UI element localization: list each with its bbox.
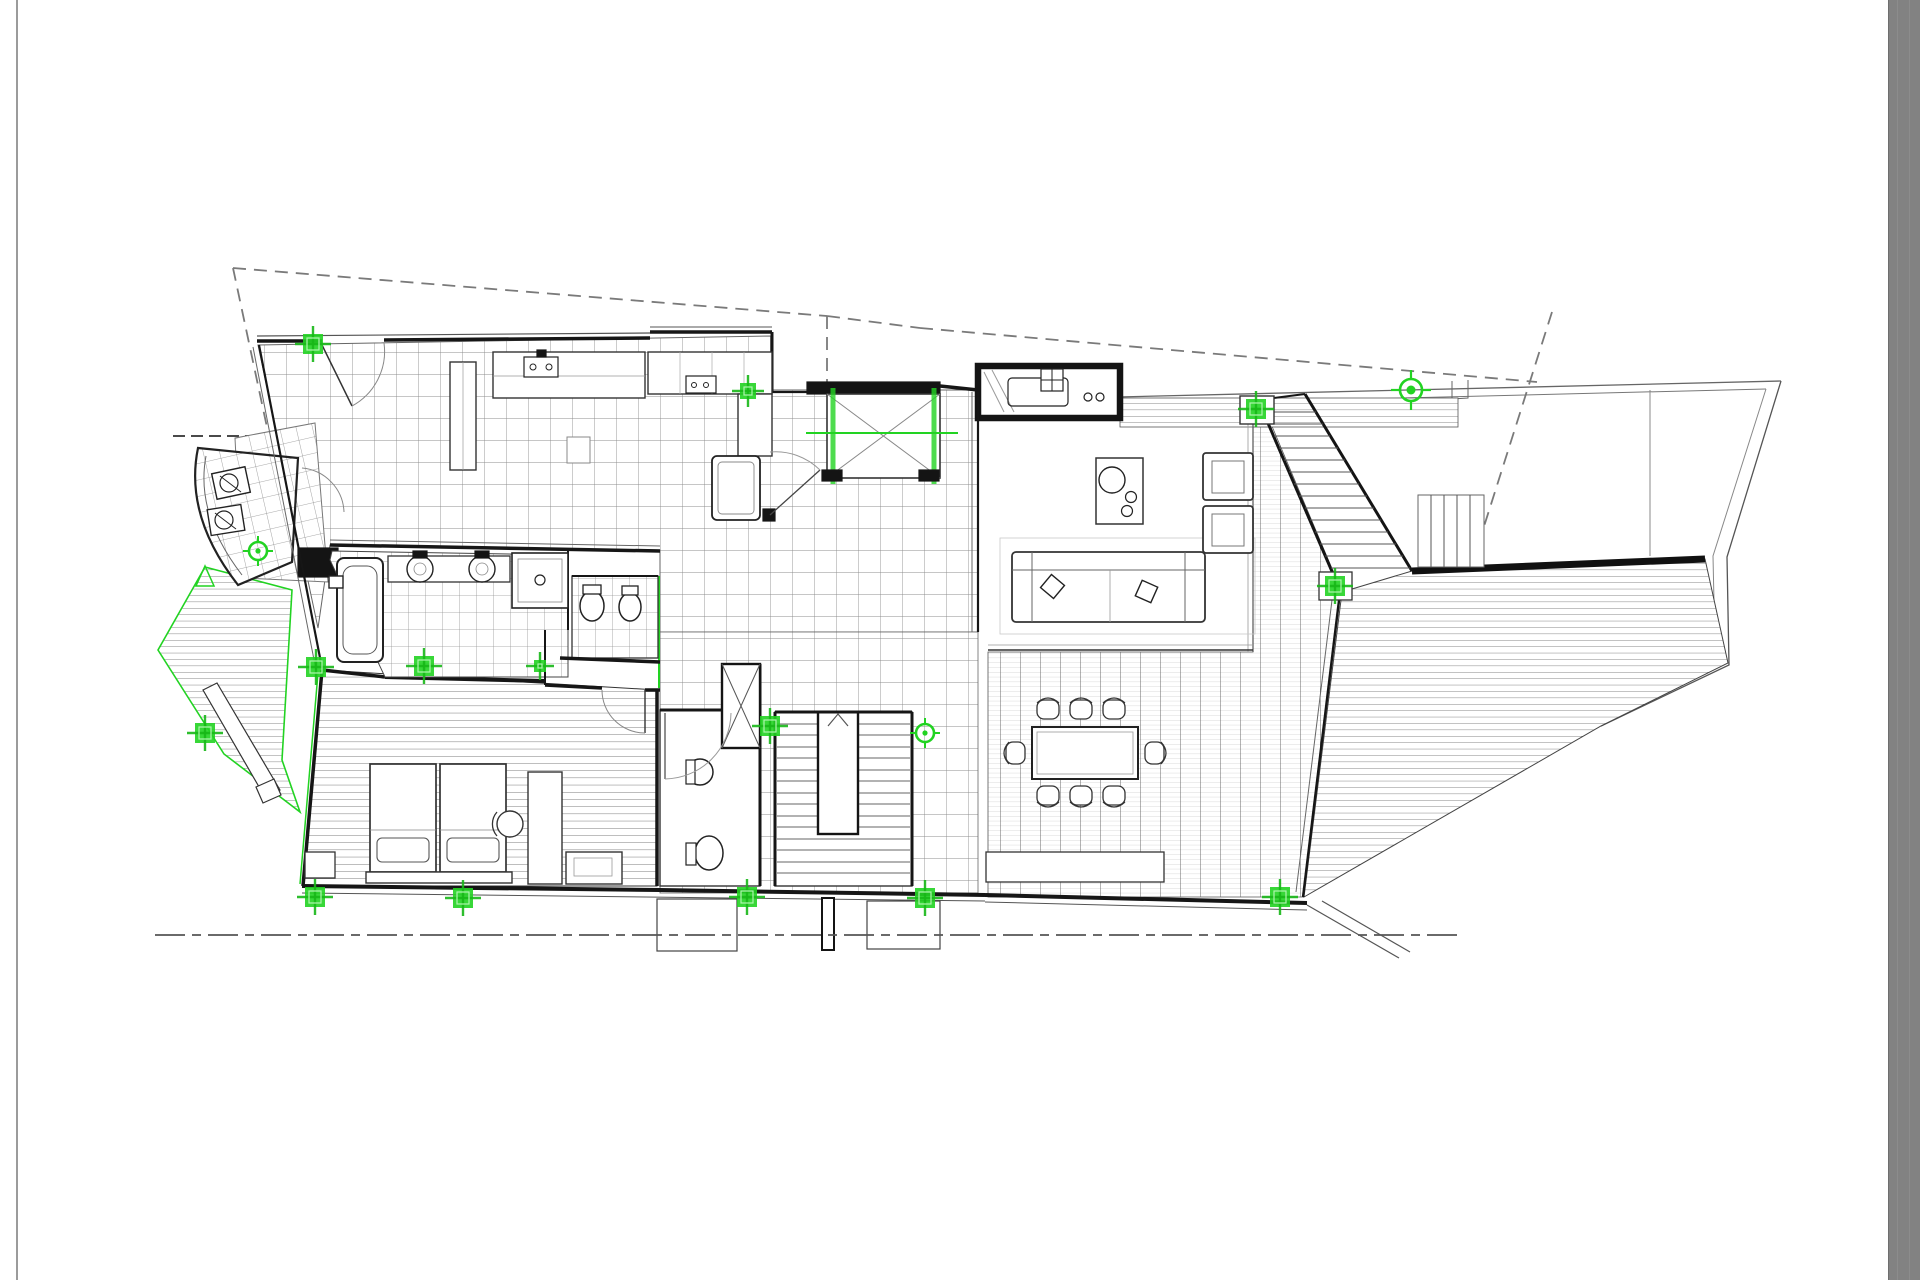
prep-sink [686, 376, 716, 393]
dresser [566, 852, 622, 884]
plan-shape [919, 470, 939, 481]
toilet [580, 591, 604, 621]
exterior-step [867, 901, 940, 949]
floor-plan-canvas [0, 0, 1920, 1280]
garden-steps [1418, 495, 1484, 567]
headboard [366, 872, 512, 883]
page-edge [16, 0, 18, 1280]
toilet [695, 836, 723, 870]
bidet [619, 593, 641, 621]
stair-core [818, 712, 858, 834]
plan-shape [413, 551, 427, 558]
nightstand [305, 852, 335, 878]
path-edge [1322, 901, 1410, 952]
desk [528, 772, 562, 884]
bench [986, 852, 1164, 882]
dining-chair [1070, 786, 1092, 805]
plan-shape [822, 470, 842, 481]
lot-boundary-dashed [233, 268, 827, 316]
dining-chair [1006, 742, 1025, 764]
dining-chair [1037, 786, 1059, 805]
scrollbar[interactable] [1888, 0, 1920, 1280]
dining-chair [1145, 742, 1164, 764]
scrollbar-streak [1909, 0, 1910, 1280]
sink [469, 556, 495, 582]
path-edge [1307, 905, 1399, 958]
exterior-step [657, 899, 737, 951]
drain-post [822, 898, 834, 950]
wall-north [384, 338, 650, 340]
wall [940, 386, 978, 390]
bathtub [337, 558, 383, 662]
desk-chair [497, 811, 523, 837]
door-jamb [763, 509, 775, 521]
deck-west [158, 567, 300, 812]
site-outline [1117, 381, 1781, 397]
plan-shape [583, 585, 601, 594]
skylight-head-wall [807, 382, 940, 394]
plan-shape [537, 350, 546, 357]
dining-chair [1037, 700, 1059, 719]
bed [370, 764, 436, 872]
kitchen-sink [524, 357, 558, 377]
lot-boundary-dashed [827, 316, 920, 328]
bed [440, 764, 506, 872]
tub-tap [329, 576, 343, 588]
tall-cabinet [738, 394, 772, 456]
shower [512, 553, 568, 608]
wall-south [302, 886, 660, 890]
dining-chair [1070, 700, 1092, 719]
deck-east-lower [1304, 559, 1728, 897]
plan-shape [475, 551, 489, 558]
deck-dining [988, 412, 1341, 897]
floor-box [567, 437, 590, 463]
dining-chair [1103, 786, 1125, 805]
scrollbar-streak [1897, 0, 1898, 1280]
dryer [207, 505, 245, 536]
plan-shape [686, 843, 696, 865]
sink [407, 556, 433, 582]
plan-layer [155, 268, 1781, 958]
drawing-viewer [0, 0, 1920, 1280]
dining-table [1032, 727, 1138, 779]
plan-shape [622, 586, 638, 595]
dining-chair [1103, 700, 1125, 719]
kitchen-appliance [712, 456, 760, 520]
kitchen-counter [493, 352, 645, 398]
